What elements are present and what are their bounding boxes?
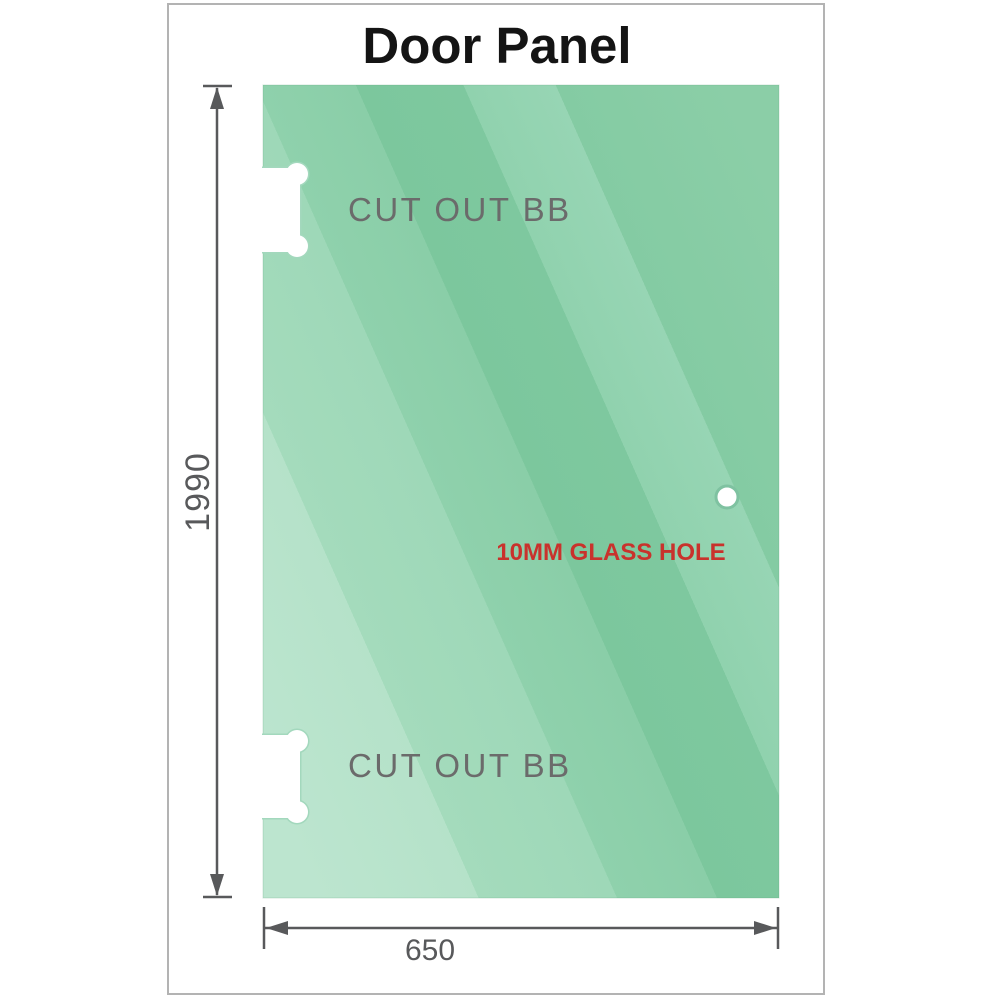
door-panel-diagram: CUT OUT BB CUT OUT BB 10MM GLASS HOLE 19… [0, 0, 1000, 1000]
glass-hole [716, 486, 738, 508]
glass-hole-label: 10MM GLASS HOLE [496, 539, 725, 566]
cutout-label-top: CUT OUT BB [348, 191, 572, 228]
width-dimension [264, 907, 778, 949]
cutout-label-bottom: CUT OUT BB [348, 747, 572, 784]
height-dimension-label: 1990 [179, 452, 217, 532]
width-dimension-label: 650 [405, 934, 455, 967]
hinge-cutout-top [258, 163, 308, 257]
hinge-cutout-bottom [258, 730, 308, 823]
